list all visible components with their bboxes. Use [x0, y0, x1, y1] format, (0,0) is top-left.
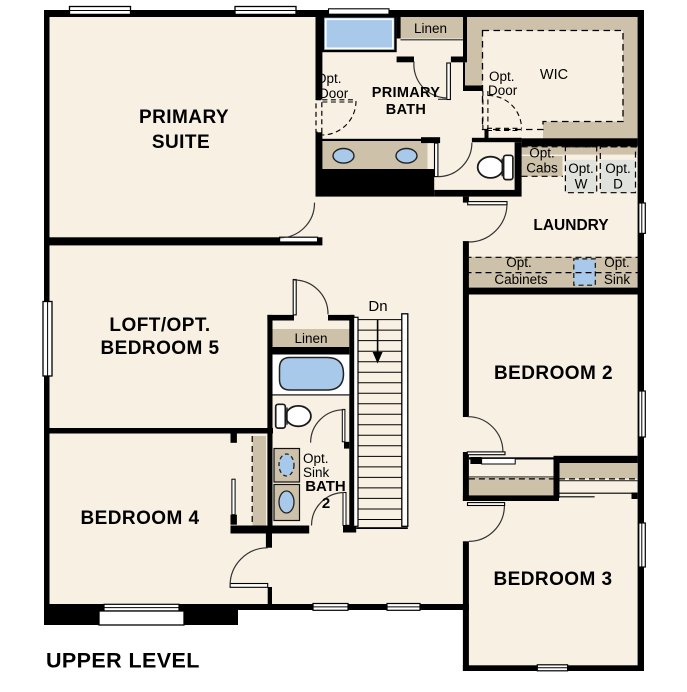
svg-text:Door: Door [319, 86, 349, 101]
svg-text:LAUNDRY: LAUNDRY [533, 217, 609, 234]
svg-text:BATH: BATH [386, 102, 426, 118]
svg-text:Opt.: Opt. [316, 71, 342, 86]
svg-text:Opt.: Opt. [568, 161, 594, 176]
svg-text:BEDROOM 5: BEDROOM 5 [100, 338, 219, 359]
svg-text:Sink: Sink [604, 272, 631, 287]
svg-text:Linen: Linen [294, 331, 327, 346]
svg-text:W: W [575, 177, 588, 192]
svg-text:PRIMARY: PRIMARY [139, 107, 229, 128]
svg-text:Opt.: Opt. [489, 69, 515, 84]
svg-text:BATH: BATH [305, 478, 346, 495]
svg-text:SUITE: SUITE [152, 132, 210, 153]
svg-text:UPPER LEVEL: UPPER LEVEL [46, 649, 200, 673]
svg-text:Cabinets: Cabinets [494, 272, 548, 287]
svg-text:2: 2 [322, 495, 330, 512]
svg-text:Opt.: Opt. [604, 255, 630, 270]
svg-text:WIC: WIC [540, 67, 568, 83]
svg-text:Opt.: Opt. [529, 146, 555, 161]
svg-text:Door: Door [488, 83, 518, 98]
svg-text:Opt.: Opt. [506, 255, 532, 270]
svg-text:BEDROOM 4: BEDROOM 4 [80, 508, 199, 529]
svg-text:D: D [613, 177, 623, 192]
svg-text:Opt.: Opt. [605, 161, 631, 176]
svg-text:BEDROOM 2: BEDROOM 2 [494, 363, 613, 384]
svg-text:BEDROOM 3: BEDROOM 3 [493, 569, 612, 590]
svg-text:Cabs: Cabs [526, 161, 558, 176]
svg-text:Opt.: Opt. [303, 451, 329, 466]
svg-text:Dn: Dn [368, 298, 387, 315]
svg-text:Linen: Linen [414, 21, 447, 36]
svg-text:PRIMARY: PRIMARY [372, 85, 440, 101]
svg-text:LOFT/OPT.: LOFT/OPT. [109, 315, 210, 336]
